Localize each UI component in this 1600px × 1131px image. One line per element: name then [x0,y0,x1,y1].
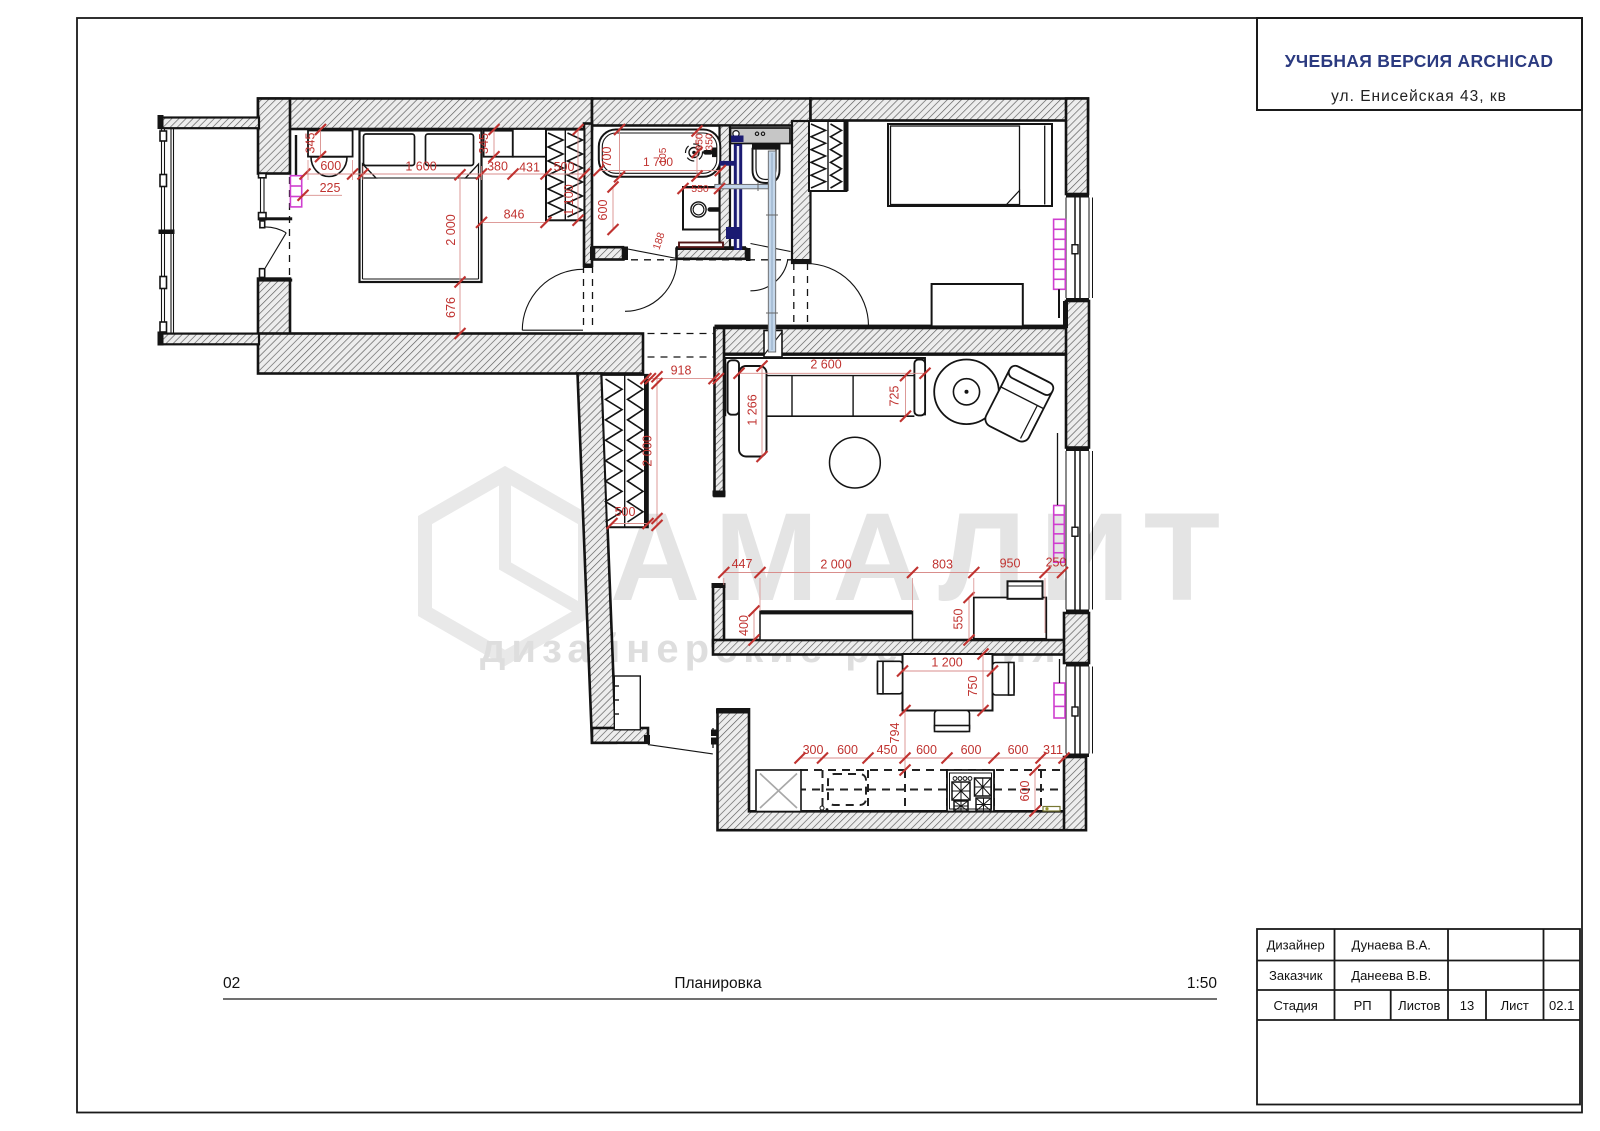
svg-text:2 600: 2 600 [810,358,841,372]
svg-text:АМАЛИТ: АМАЛИТ [610,488,1234,627]
svg-text:794: 794 [888,723,902,744]
svg-text:431: 431 [519,161,540,175]
svg-text:1 200: 1 200 [931,656,962,670]
svg-text:500: 500 [615,505,636,519]
svg-text:550: 550 [691,183,709,195]
svg-text:13: 13 [1460,998,1474,1013]
svg-text:188: 188 [651,231,668,252]
svg-text:225: 225 [320,181,341,195]
svg-text:2 000: 2 000 [641,435,655,466]
svg-text:Стадия: Стадия [1274,998,1318,1013]
svg-text:600: 600 [1008,743,1029,757]
svg-text:Планировка: Планировка [674,975,762,992]
svg-text:300: 300 [803,743,824,757]
svg-text:600: 600 [961,743,982,757]
svg-text:02.1: 02.1 [1549,998,1574,1013]
svg-text:345: 345 [477,133,491,154]
svg-text:500: 500 [554,160,575,174]
svg-text:600: 600 [837,743,858,757]
svg-text:Дунаева В.А.: Дунаева В.А. [1351,938,1430,953]
svg-text:РП: РП [1354,998,1372,1013]
svg-text:846: 846 [504,208,525,222]
svg-text:Заказчик: Заказчик [1269,968,1323,983]
svg-text:311: 311 [1043,743,1063,757]
svg-text:2 000: 2 000 [820,558,851,572]
svg-text:Листов: Листов [1398,998,1440,1013]
svg-text:918: 918 [671,364,692,378]
svg-text:450: 450 [877,743,898,757]
svg-text:2 000: 2 000 [444,214,458,245]
svg-text:400: 400 [737,615,751,636]
svg-text:1:50: 1:50 [1187,975,1218,992]
svg-text:Дизайнер: Дизайнер [1267,938,1325,953]
svg-text:250: 250 [1046,556,1067,570]
svg-text:Данеева В.В.: Данеева В.В. [1351,968,1431,983]
svg-text:Лист: Лист [1501,998,1529,1013]
svg-text:1 100: 1 100 [562,184,576,215]
svg-text:676: 676 [444,297,458,318]
svg-text:УЧЕБНАЯ ВЕРСИЯ ARCHICAD: УЧЕБНАЯ ВЕРСИЯ ARCHICAD [1285,51,1554,71]
svg-text:447: 447 [732,557,753,571]
svg-text:02: 02 [223,975,240,992]
svg-text:600: 600 [596,200,610,221]
svg-text:600: 600 [1018,781,1032,802]
svg-text:750: 750 [966,676,980,697]
svg-text:ул. Енисейская 43, кв: ул. Енисейская 43, кв [1331,88,1507,105]
svg-text:950: 950 [1000,557,1021,571]
svg-text:350: 350 [704,133,716,151]
svg-text:803: 803 [932,558,953,572]
svg-text:105: 105 [658,147,669,164]
svg-text:600: 600 [320,159,341,173]
svg-text:550: 550 [952,609,966,630]
svg-text:345: 345 [304,133,318,154]
svg-text:1 266: 1 266 [746,394,760,425]
svg-text:1 600: 1 600 [405,160,436,174]
svg-text:725: 725 [888,386,902,407]
svg-text:700: 700 [600,147,614,168]
svg-text:600: 600 [916,743,937,757]
